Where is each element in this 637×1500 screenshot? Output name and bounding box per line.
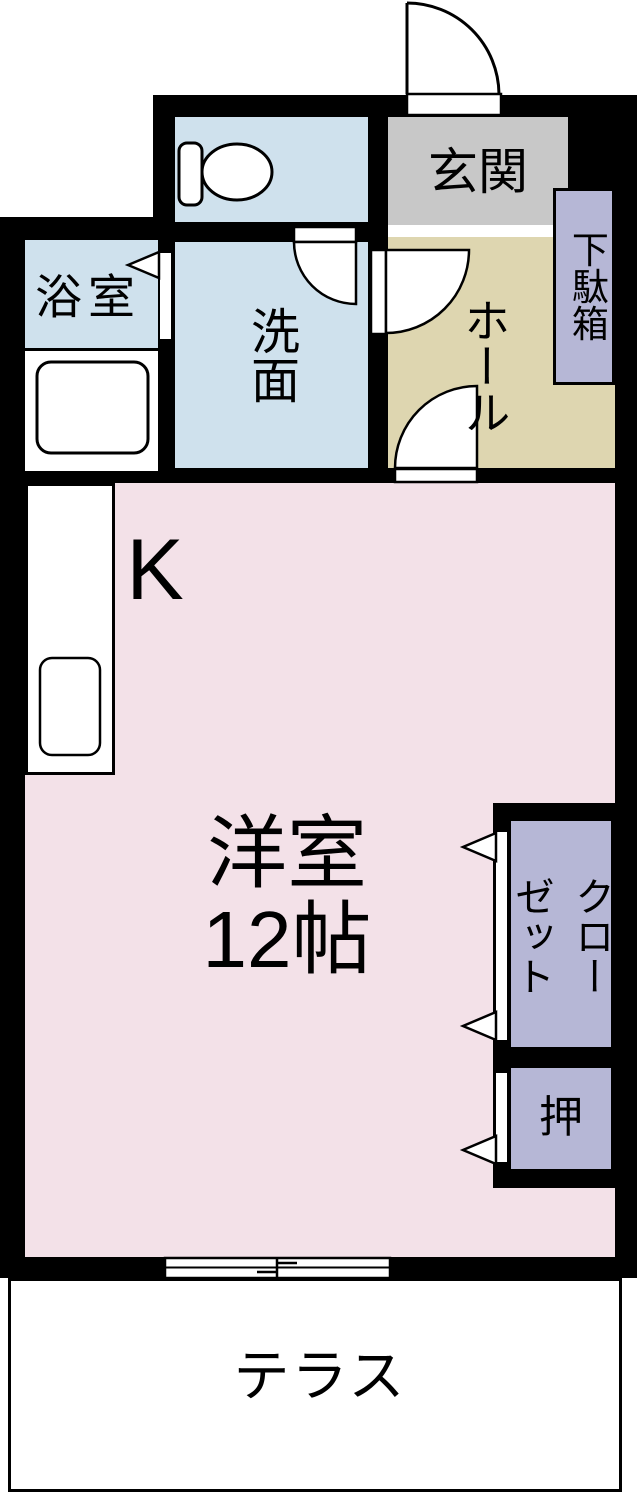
western-room-label: 洋室 12帖: [203, 811, 372, 983]
closet-label-col1: クロー: [561, 876, 621, 996]
oshiire-label: 押: [539, 1095, 583, 1141]
shoe-cabinet-label: 下駄箱: [566, 231, 607, 342]
entrance-door-swing-icon: [407, 3, 501, 115]
sink-icon: [40, 658, 100, 755]
closet-label-col2: ゼット: [501, 876, 561, 996]
hall-label: ホール: [459, 297, 510, 435]
floorplan-canvas: 玄関 下駄箱 ホール 洗面 浴室 K 洋室 12帖 クロー ゼット 押 テラス: [0, 0, 637, 1500]
plan-symbols: [0, 0, 637, 1500]
kitchen-label: K: [126, 525, 183, 615]
sliding-window-icon: [165, 1258, 390, 1278]
closet-label: クロー ゼット: [501, 876, 621, 996]
toilet-icon: [179, 143, 272, 205]
western-room-label-line2: 12帖: [203, 897, 372, 983]
oshiire-sliding-door-icon: [463, 1073, 507, 1164]
terrace-label: テラス: [234, 1348, 407, 1407]
western-room-label-line1: 洋室: [203, 811, 372, 897]
bathtub-icon: [37, 362, 148, 453]
washroom-door-swing-icon: [371, 250, 469, 334]
washroom-label: 洗面: [243, 306, 297, 404]
entrance-label: 玄関: [428, 146, 528, 199]
toilet-door-swing-icon: [294, 227, 356, 304]
bathroom-label: 浴室: [35, 272, 141, 321]
